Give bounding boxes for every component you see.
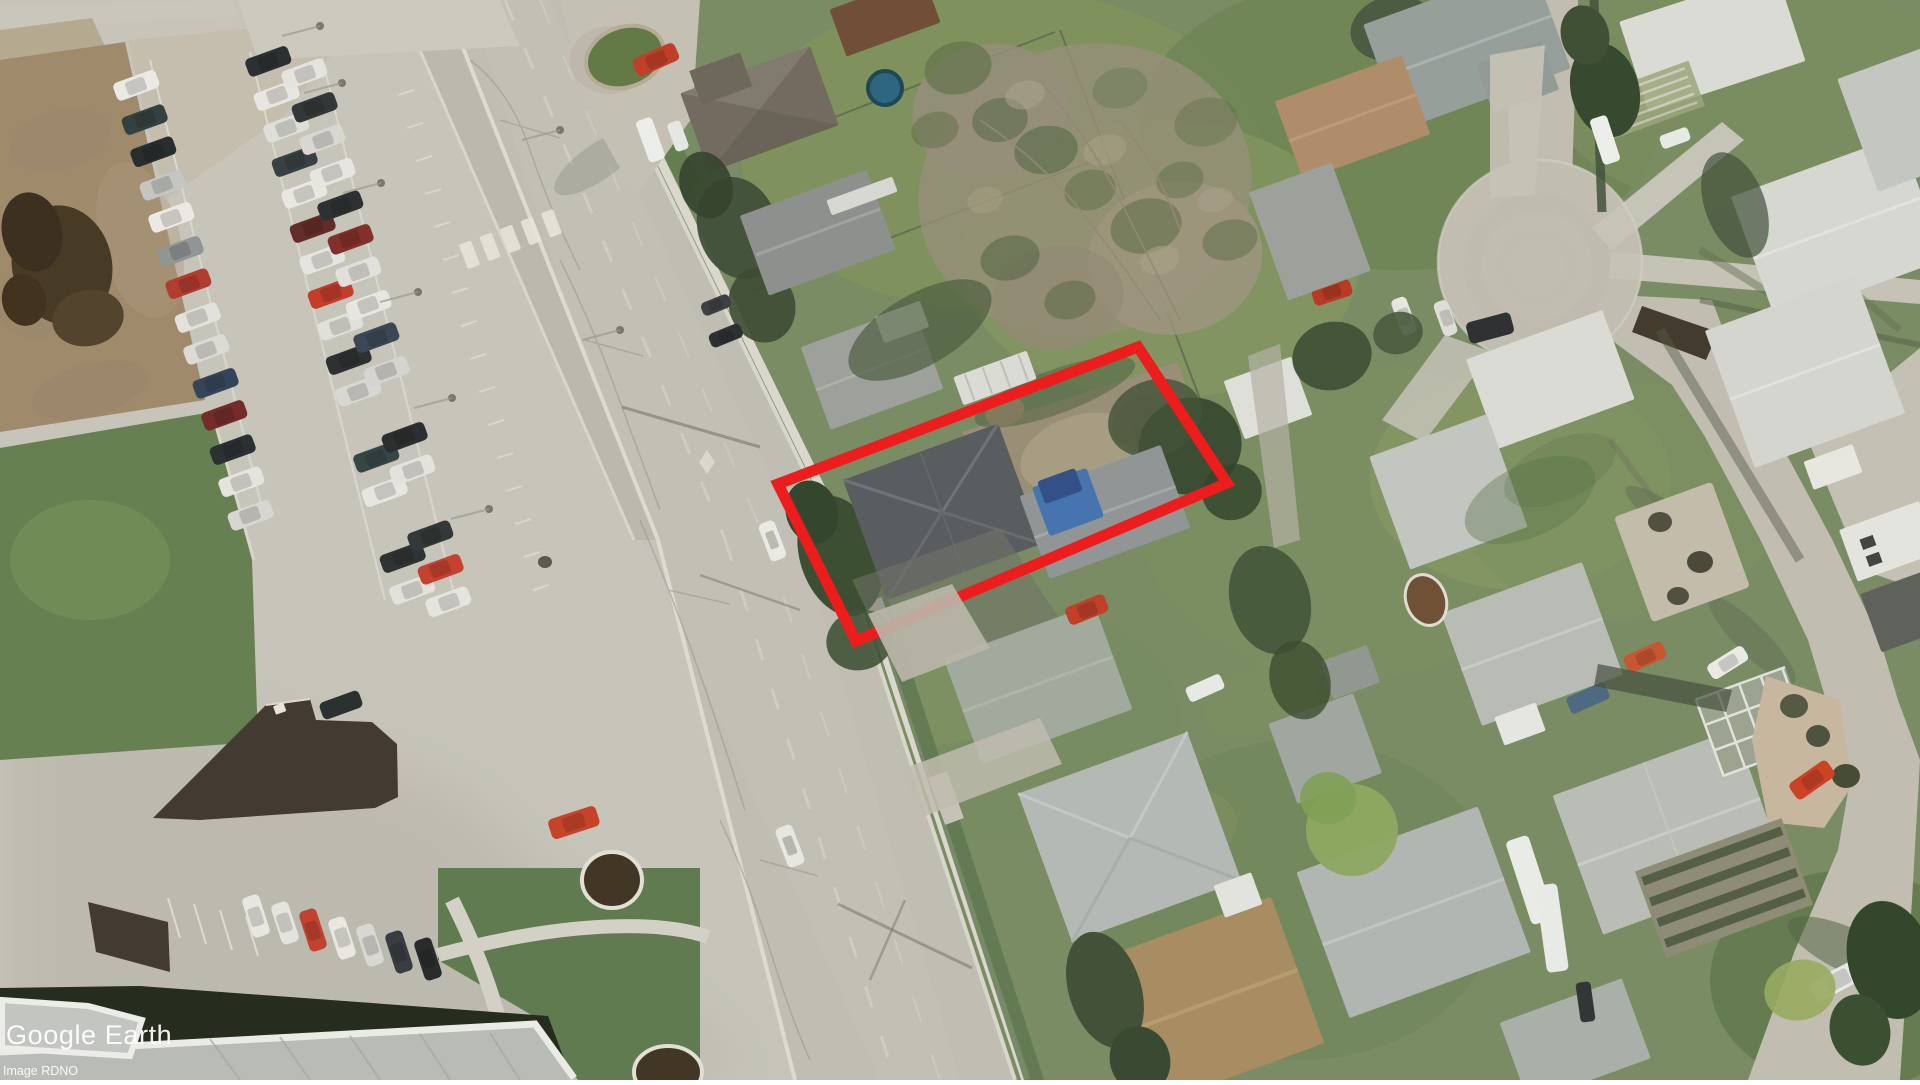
svg-text:Google Earth: Google Earth <box>6 1020 172 1050</box>
svg-text:Image RDNO: Image RDNO <box>3 1064 78 1078</box>
